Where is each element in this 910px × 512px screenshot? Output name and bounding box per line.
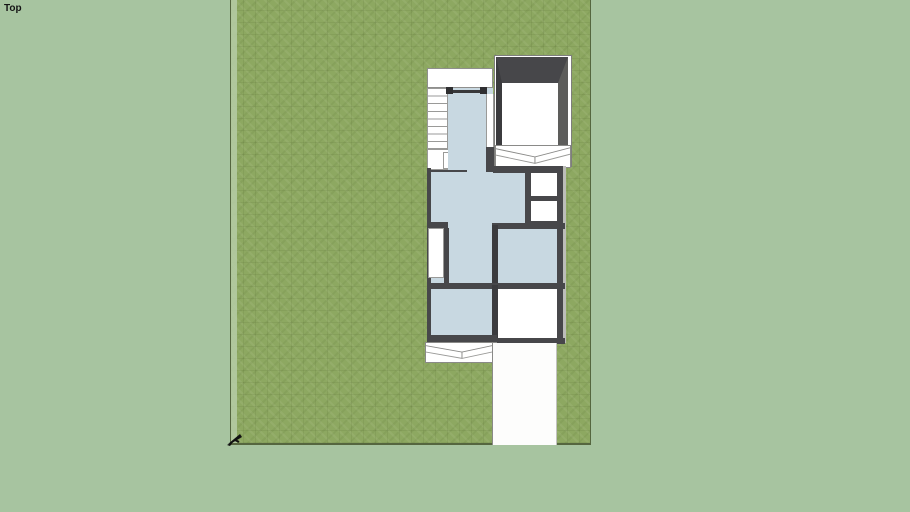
3d-viewport[interactable]: Top — [0, 0, 910, 512]
hall-wall-strip — [486, 94, 494, 147]
lot-edge-strip — [231, 0, 237, 443]
roof-band-top[interactable] — [427, 68, 493, 88]
railing-post-right — [480, 87, 487, 94]
entry-awning-ridge-lines-icon — [426, 343, 496, 362]
view-label: Top — [4, 3, 22, 14]
closet-right-wall — [444, 228, 449, 284]
staircase-run[interactable] — [427, 88, 448, 149]
exterior-wall-right-edge — [563, 166, 566, 343]
awning-ridge-lines-icon — [496, 146, 570, 167]
room-bottom-left-floor[interactable] — [431, 289, 492, 336]
upper-volume-walls[interactable] — [496, 57, 568, 145]
upper-volume-awning[interactable] — [495, 145, 571, 168]
small-room-1[interactable] — [531, 173, 557, 196]
room-bottom-right[interactable] — [498, 289, 557, 338]
small-room-2[interactable] — [531, 201, 557, 221]
origin-marker-icon[interactable] — [226, 431, 246, 446]
entry-awning[interactable] — [425, 342, 497, 363]
railing-post-left — [446, 87, 453, 94]
room-right-floor[interactable] — [498, 229, 557, 283]
exterior-wall-bottom-left — [427, 335, 497, 342]
driveway[interactable] — [492, 343, 557, 445]
closet-room[interactable] — [428, 228, 444, 278]
